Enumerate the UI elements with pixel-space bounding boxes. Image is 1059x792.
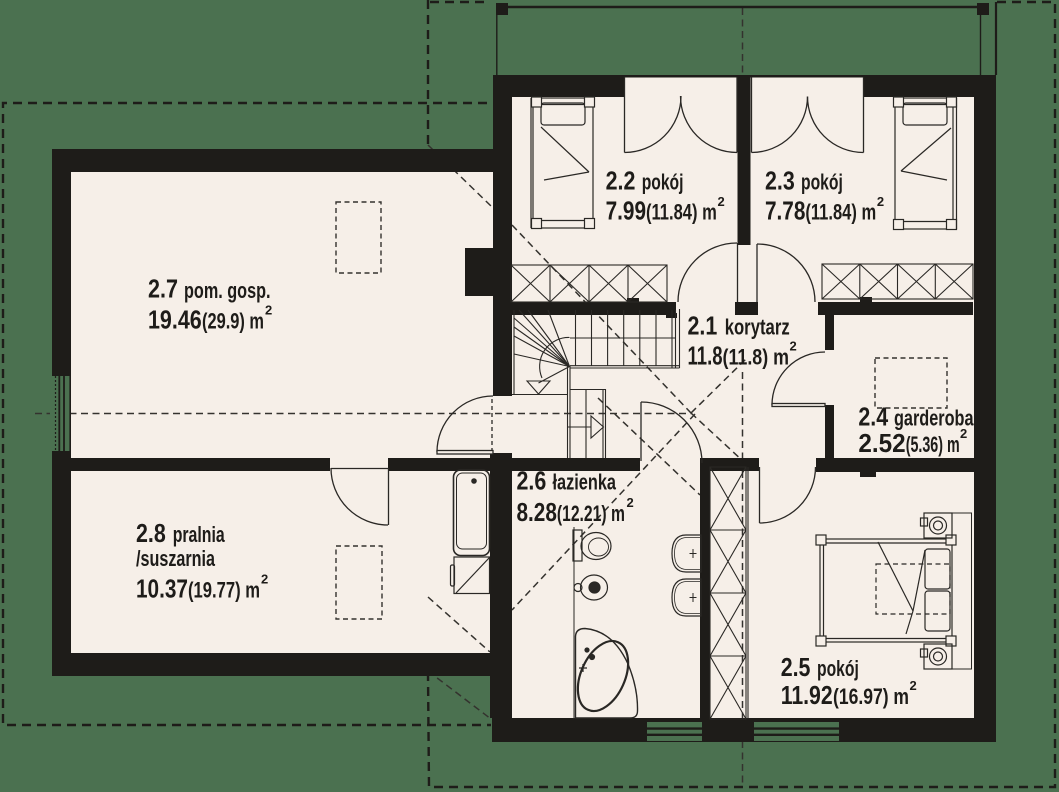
svg-text:pokój: pokój bbox=[817, 656, 859, 681]
svg-text:korytarz: korytarz bbox=[725, 315, 790, 340]
svg-text:2.2: 2.2 bbox=[606, 166, 636, 196]
svg-text:11.92: 11.92 bbox=[781, 680, 833, 710]
svg-text:/suszarnia: /suszarnia bbox=[136, 546, 216, 571]
svg-text:2.8: 2.8 bbox=[136, 518, 166, 548]
svg-text:(16.97) m: (16.97) m bbox=[833, 684, 909, 709]
svg-text:2: 2 bbox=[877, 194, 884, 209]
svg-text:7.78: 7.78 bbox=[765, 195, 805, 225]
svg-text:11.8: 11.8 bbox=[688, 341, 723, 371]
svg-text:2: 2 bbox=[265, 303, 272, 318]
svg-text:7.99: 7.99 bbox=[606, 195, 646, 225]
svg-text:pralnia: pralnia bbox=[173, 522, 226, 547]
svg-text:pom. gosp.: pom. gosp. bbox=[184, 278, 271, 303]
svg-text:2: 2 bbox=[627, 495, 634, 510]
svg-text:pokój: pokój bbox=[642, 170, 684, 195]
svg-text:2.6: 2.6 bbox=[517, 466, 547, 496]
svg-text:2: 2 bbox=[960, 426, 967, 441]
svg-text:2.7: 2.7 bbox=[148, 273, 178, 303]
svg-text:2: 2 bbox=[718, 194, 725, 209]
svg-text:łazienka: łazienka bbox=[553, 470, 617, 495]
svg-text:2.5: 2.5 bbox=[781, 652, 811, 682]
svg-text:2.3: 2.3 bbox=[765, 166, 795, 196]
svg-text:(12.21) m: (12.21) m bbox=[557, 501, 625, 526]
svg-text:(11.84) m: (11.84) m bbox=[805, 199, 876, 224]
svg-text:19.46: 19.46 bbox=[148, 305, 202, 335]
svg-text:(11.8) m: (11.8) m bbox=[723, 345, 790, 370]
svg-text:2: 2 bbox=[261, 572, 268, 587]
svg-text:(19.77) m: (19.77) m bbox=[188, 578, 260, 603]
svg-text:(29.9) m: (29.9) m bbox=[202, 309, 264, 334]
svg-text:pokój: pokój bbox=[801, 170, 843, 195]
svg-text:(5.36) m: (5.36) m bbox=[906, 432, 960, 457]
svg-text:2.1: 2.1 bbox=[688, 311, 718, 341]
svg-text:2: 2 bbox=[910, 678, 917, 693]
svg-text:(11.84) m: (11.84) m bbox=[646, 199, 717, 224]
svg-text:10.37: 10.37 bbox=[136, 574, 188, 604]
svg-text:8.28: 8.28 bbox=[517, 497, 557, 527]
svg-text:2: 2 bbox=[790, 339, 797, 354]
svg-text:2.52: 2.52 bbox=[858, 428, 905, 458]
